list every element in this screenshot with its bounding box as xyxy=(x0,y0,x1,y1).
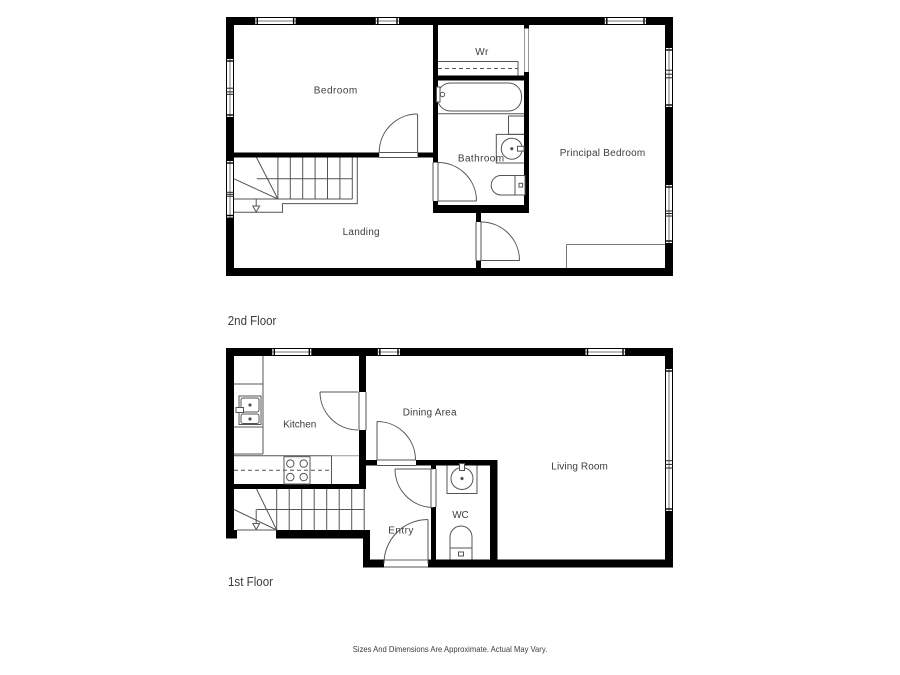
svg-text:Sizes And Dimensions Are Appro: Sizes And Dimensions Are Approximate. Ac… xyxy=(353,644,547,654)
svg-text:1st Floor: 1st Floor xyxy=(228,575,273,589)
svg-text:Entry: Entry xyxy=(388,526,413,537)
svg-text:Dining Area: Dining Area xyxy=(403,408,457,419)
svg-text:Principal Bedroom: Principal Bedroom xyxy=(560,148,646,159)
svg-text:2nd Floor: 2nd Floor xyxy=(228,314,276,328)
svg-text:Kitchen: Kitchen xyxy=(283,420,316,431)
svg-text:Bedroom: Bedroom xyxy=(314,86,357,97)
svg-text:Landing: Landing xyxy=(343,227,380,238)
svg-text:Bathroom: Bathroom xyxy=(458,154,504,165)
svg-text:Wr: Wr xyxy=(475,47,489,58)
svg-text:Living Room: Living Room xyxy=(551,462,608,473)
svg-text:WC: WC xyxy=(452,510,469,521)
